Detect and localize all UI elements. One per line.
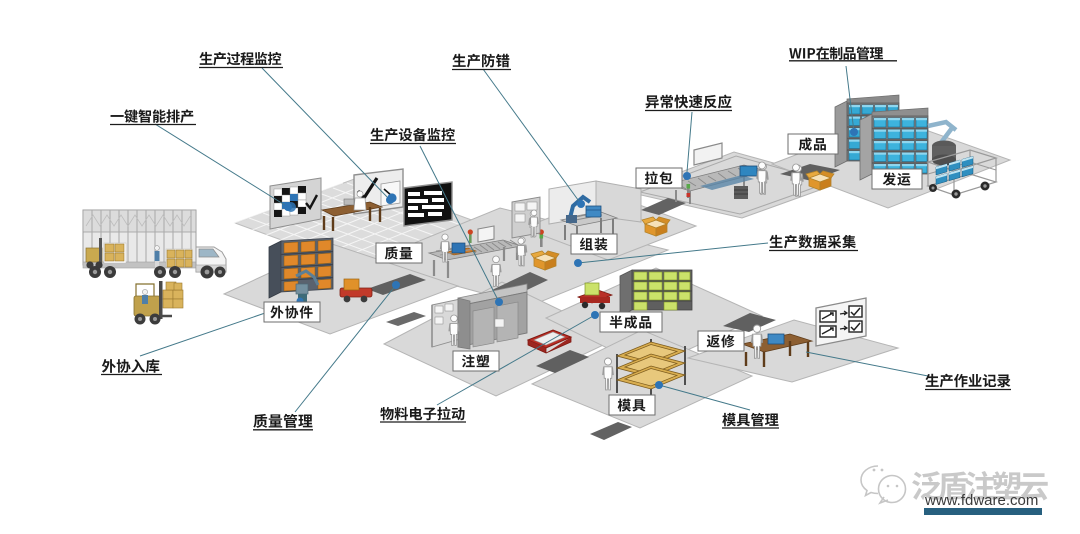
svg-text:www.fdware.com: www.fdware.com xyxy=(924,492,1038,509)
